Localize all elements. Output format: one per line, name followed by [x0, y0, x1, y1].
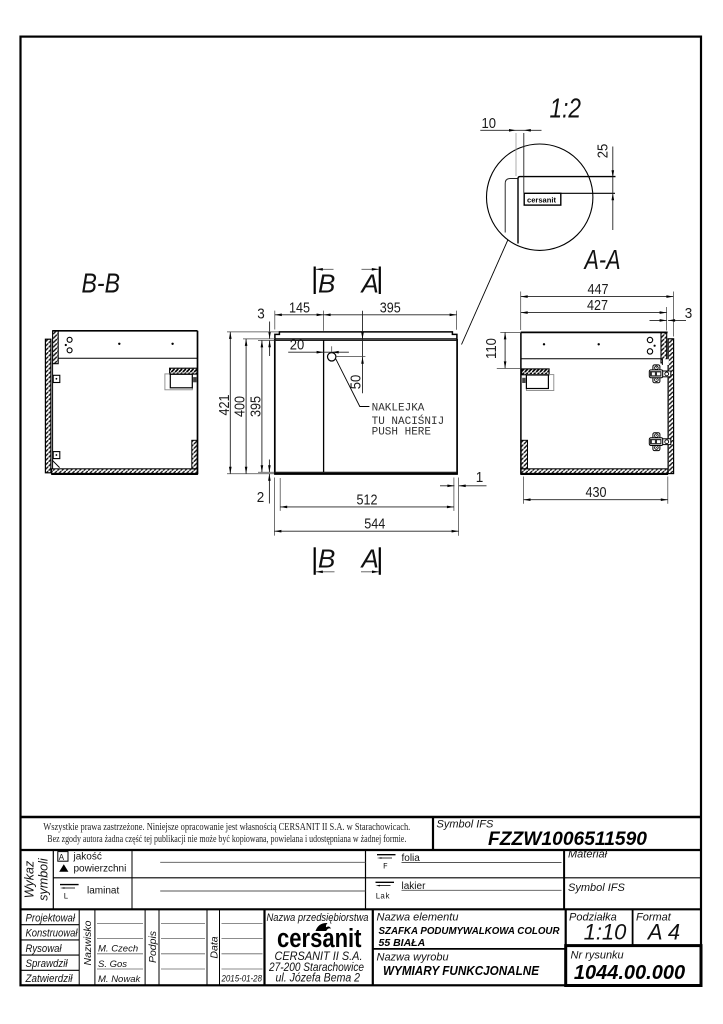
svg-text:Symbol IFS: Symbol IFS [568, 882, 626, 894]
svg-text:A 4: A 4 [646, 920, 680, 945]
svg-text:55 BIAŁA: 55 BIAŁA [379, 937, 426, 949]
svg-text:Rysował: Rysował [26, 943, 62, 955]
svg-text:1044.00.000: 1044.00.000 [574, 962, 685, 984]
svg-text:A: A [360, 269, 379, 299]
svg-text:Nazwisko: Nazwisko [82, 920, 94, 965]
svg-text:lakier: lakier [402, 881, 427, 892]
svg-text:421: 421 [216, 395, 233, 416]
svg-text:A-A: A-A [583, 244, 621, 275]
svg-text:Bez zgody autora żadna część t: Bez zgody autora żadna część tej publika… [47, 834, 406, 845]
svg-text:1:2: 1:2 [550, 93, 582, 124]
svg-text:folia: folia [402, 853, 421, 864]
svg-text:25: 25 [594, 144, 611, 159]
svg-text:Sprawdził: Sprawdził [26, 958, 68, 970]
svg-text:20: 20 [290, 337, 305, 354]
svg-text:WYMIARY FUNKCJONALNE: WYMIARY FUNKCJONALNE [383, 964, 540, 978]
svg-text:powierzchni: powierzchni [74, 864, 127, 875]
svg-text:S. Gos: S. Gos [98, 959, 127, 970]
svg-text:Podpis: Podpis [147, 930, 159, 963]
svg-text:B: B [318, 269, 335, 299]
svg-text:B-B: B-B [82, 268, 121, 299]
svg-text:Zatwierdził: Zatwierdził [25, 973, 73, 985]
svg-text:1:10: 1:10 [584, 920, 628, 945]
svg-text:10: 10 [482, 115, 497, 132]
svg-text:3: 3 [685, 305, 693, 322]
svg-text:Materiał: Materiał [568, 849, 608, 861]
svg-text:Lak: Lak [376, 893, 391, 902]
svg-text:Data: Data [209, 936, 221, 958]
svg-text:Symbol IFS: Symbol IFS [437, 819, 495, 831]
svg-text:395: 395 [247, 396, 264, 417]
svg-text:2: 2 [257, 489, 265, 506]
svg-text:PUSH HERE: PUSH HERE [372, 427, 432, 439]
svg-text:Konstruował: Konstruował [26, 928, 78, 940]
svg-text:Wykaz: Wykaz [23, 860, 37, 898]
svg-text:A: A [360, 544, 379, 574]
svg-text:Nazwa przedsiębiorstwa: Nazwa przedsiębiorstwa [267, 912, 369, 924]
svg-text:110: 110 [483, 338, 500, 359]
svg-text:Projektował: Projektował [26, 912, 76, 924]
svg-text:Nazwa elementu: Nazwa elementu [377, 912, 459, 924]
svg-text:M. Czech: M. Czech [98, 944, 138, 955]
svg-text:145: 145 [289, 300, 310, 317]
svg-text:3: 3 [257, 306, 265, 323]
svg-text:B: B [318, 544, 335, 574]
svg-text:FZZW1006511590: FZZW1006511590 [488, 829, 647, 850]
svg-text:laminat: laminat [87, 886, 119, 897]
svg-text:1: 1 [476, 469, 484, 486]
svg-text:NAKLEJKA: NAKLEJKA [372, 402, 425, 414]
svg-text:430: 430 [586, 484, 607, 501]
svg-text:512: 512 [357, 491, 378, 508]
svg-text:SZAFKA PODUMYWALKOWA COLOUR: SZAFKA PODUMYWALKOWA COLOUR [379, 925, 560, 937]
svg-text:Nr rysunku: Nr rysunku [571, 950, 624, 962]
svg-text:M. Nowak: M. Nowak [98, 974, 141, 985]
svg-text:A: A [59, 853, 65, 862]
svg-text:447: 447 [588, 281, 609, 298]
svg-text:2015-01-28: 2015-01-28 [221, 974, 263, 985]
svg-text:Wszystkie prawa zastrzeżone. N: Wszystkie prawa zastrzeżone. Niniejsze o… [43, 822, 410, 833]
svg-text:Nazwa wyrobu: Nazwa wyrobu [377, 951, 449, 963]
svg-text:395: 395 [380, 300, 401, 317]
svg-text:F: F [383, 863, 388, 872]
svg-text:ul. Józefa Bema 2: ul. Józefa Bema 2 [276, 970, 361, 984]
svg-text:cersanit: cersanit [527, 195, 556, 204]
svg-text:symboli: symboli [37, 857, 51, 901]
svg-text:jakość: jakość [73, 852, 102, 863]
svg-text:L: L [64, 893, 69, 902]
svg-text:400: 400 [232, 396, 249, 417]
svg-text:427: 427 [587, 297, 608, 314]
svg-text:50: 50 [348, 375, 365, 390]
svg-text:544: 544 [364, 515, 385, 532]
